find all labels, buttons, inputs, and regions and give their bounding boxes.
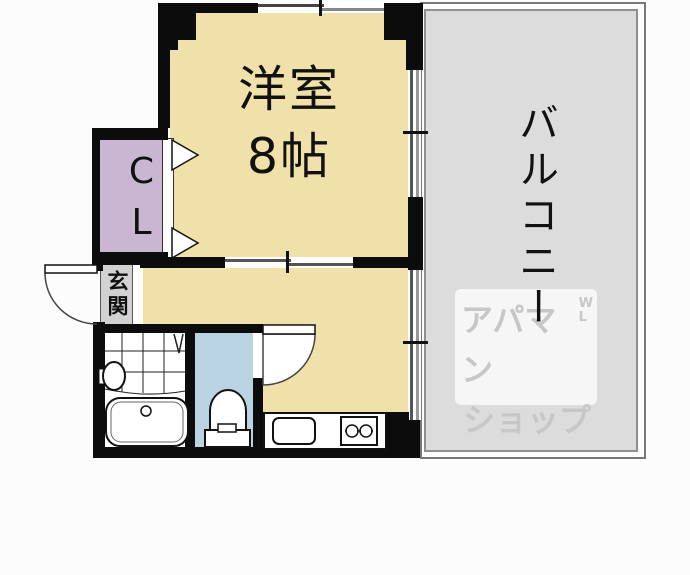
entrance-label: 玄関 xyxy=(102,266,132,324)
balcony-label: バルコニー xyxy=(506,102,564,382)
closet-label: CL xyxy=(100,146,162,258)
floor-plan: アパマン W L ショップ xyxy=(0,0,690,575)
wash-basin-icon xyxy=(99,362,125,390)
main-room-size: 8帖 xyxy=(170,123,408,190)
shower-mark-icon xyxy=(174,334,183,353)
entrance-door-swing-icon xyxy=(45,265,97,324)
stove-burners-icon xyxy=(345,425,373,437)
bathtub-icon xyxy=(106,398,188,446)
main-room-name: 洋室 xyxy=(170,56,408,123)
main-room-label: 洋室 8帖 xyxy=(170,56,408,190)
toilet-icon xyxy=(205,390,250,447)
toilet-door-swing-icon xyxy=(263,325,315,385)
